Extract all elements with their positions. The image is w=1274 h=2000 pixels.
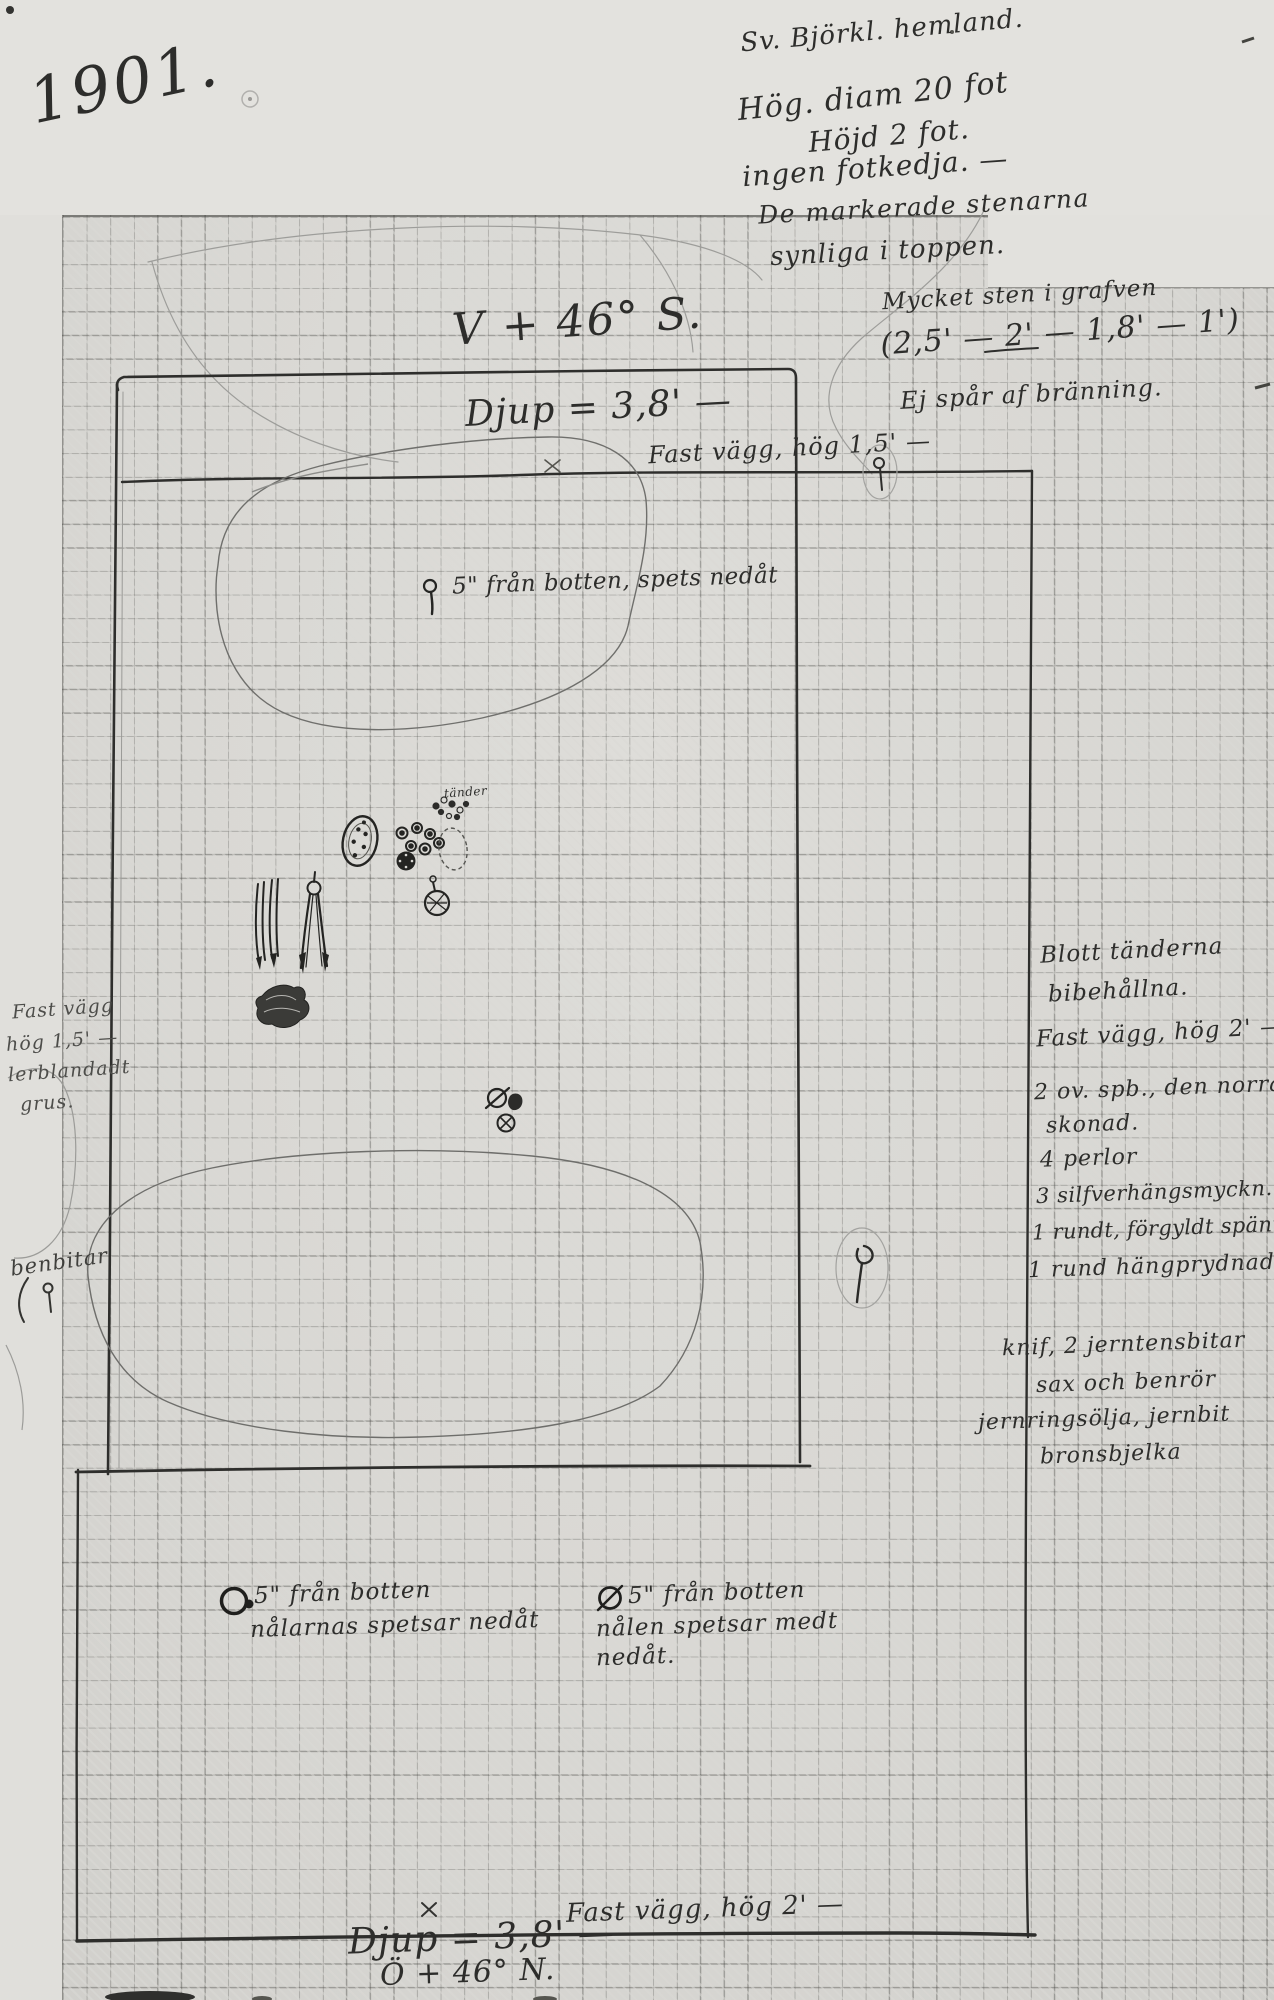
right-finds-line-3: 4 perlor bbox=[1040, 1146, 1138, 1171]
scanned-excavation-plan-page: 1901. Sv. Björkl. hemland. Hög. diam 20 … bbox=[0, 0, 1274, 2000]
left-wall-note-line-4: grus. bbox=[19, 1092, 74, 1115]
left-ring-artifact bbox=[222, 1589, 254, 1614]
damaged-brooch-sketch bbox=[436, 826, 470, 871]
teeth-sketch bbox=[433, 797, 469, 820]
x-marks bbox=[422, 460, 560, 1916]
right-ring-artifact bbox=[598, 1586, 622, 1610]
orientation-bottom-label: Ö + 46° N. bbox=[380, 1955, 556, 1991]
pin-icon-left-margin bbox=[19, 1278, 52, 1322]
slashed-circle-artifacts bbox=[486, 1088, 522, 1132]
bronze-fragment-sketch bbox=[256, 985, 309, 1027]
needle-note-left-line-1: 5" från botten bbox=[254, 1579, 432, 1608]
pin-icon-center bbox=[424, 580, 436, 614]
right-finds-line-2: skonad. bbox=[1046, 1112, 1140, 1137]
beads-sketch bbox=[397, 823, 445, 855]
stone-outline-lower bbox=[88, 1151, 703, 1438]
needle-note-right-line-1: 5" från botten bbox=[628, 1579, 806, 1608]
round-fitting-sketch bbox=[397, 852, 416, 871]
right-tools-line-4: bronsbjelka bbox=[1040, 1442, 1182, 1469]
round-pendant-sketch bbox=[425, 876, 449, 915]
oval-brooch-sketch bbox=[338, 813, 382, 869]
teeth-tiny-label: tänder bbox=[444, 785, 488, 800]
iron-rods-sketch bbox=[256, 879, 278, 970]
pin-icon-right-lower bbox=[836, 1228, 888, 1308]
scissors-sketch bbox=[299, 872, 329, 974]
needle-note-right-line-3: nedåt. bbox=[596, 1645, 676, 1671]
